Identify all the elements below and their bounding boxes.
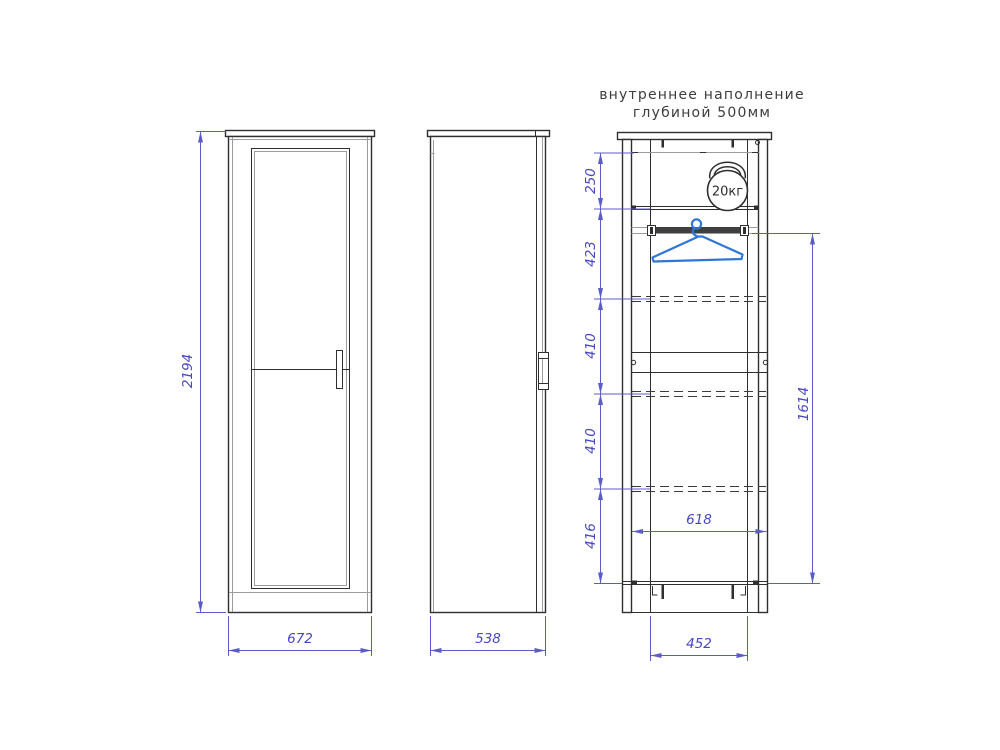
front-height-dimension: 2194 <box>180 132 226 613</box>
side-door-handle <box>539 353 549 390</box>
front-width-dimension: 672 <box>229 616 372 656</box>
side-depth-dimension: 538 <box>431 616 546 656</box>
front-height-label: 2194 <box>180 354 196 388</box>
section-height-label: 423 <box>583 241 599 267</box>
front-door-handle <box>337 351 343 389</box>
section-height-label: 410 <box>583 428 599 454</box>
kettlebell-icon: 20кг <box>708 165 748 211</box>
adjustable-shelf-positions <box>632 297 766 492</box>
front-body <box>229 137 372 613</box>
internal-view <box>618 133 772 613</box>
side-depth-label: 538 <box>475 631 501 647</box>
side-top-plate <box>428 131 550 137</box>
title-line-2: глубиной 500мм <box>633 105 771 121</box>
drawing-svg: 2194 672 538 <box>0 0 1000 750</box>
dowel-mark <box>662 140 665 148</box>
side-body <box>431 137 546 613</box>
side-view <box>428 131 550 613</box>
internal-section-dimensions: 250 423 410 410 416 <box>583 153 650 584</box>
rod-height-label: 1614 <box>796 387 812 421</box>
leg-mark <box>662 585 665 599</box>
drawing-title: внутреннее наполнение глубиной 500мм <box>599 87 805 121</box>
internal-left-panel <box>623 140 632 613</box>
dowel-mark <box>732 140 735 148</box>
base-width-label: 452 <box>686 636 712 652</box>
max-load-label: 20кг <box>712 185 743 200</box>
inner-width-dimension: 618 <box>632 512 767 532</box>
section-height-label: 250 <box>583 168 599 194</box>
base-width-dimension: 452 <box>651 616 748 661</box>
section-height-label: 410 <box>583 333 599 359</box>
internal-top-plate <box>618 133 772 140</box>
title-line-1: внутреннее наполнение <box>599 87 805 103</box>
bottom-shelf <box>623 581 768 613</box>
internal-right-panel <box>759 140 768 613</box>
front-width-label: 672 <box>287 631 313 647</box>
front-top-plate <box>226 131 375 137</box>
inner-width-label: 618 <box>686 512 712 528</box>
hanger-icon <box>653 219 743 261</box>
leg-mark <box>732 585 735 599</box>
front-view <box>226 131 375 613</box>
wardrobe-technical-drawing: 2194 672 538 <box>0 0 1000 750</box>
section-height-label: 416 <box>583 523 599 549</box>
